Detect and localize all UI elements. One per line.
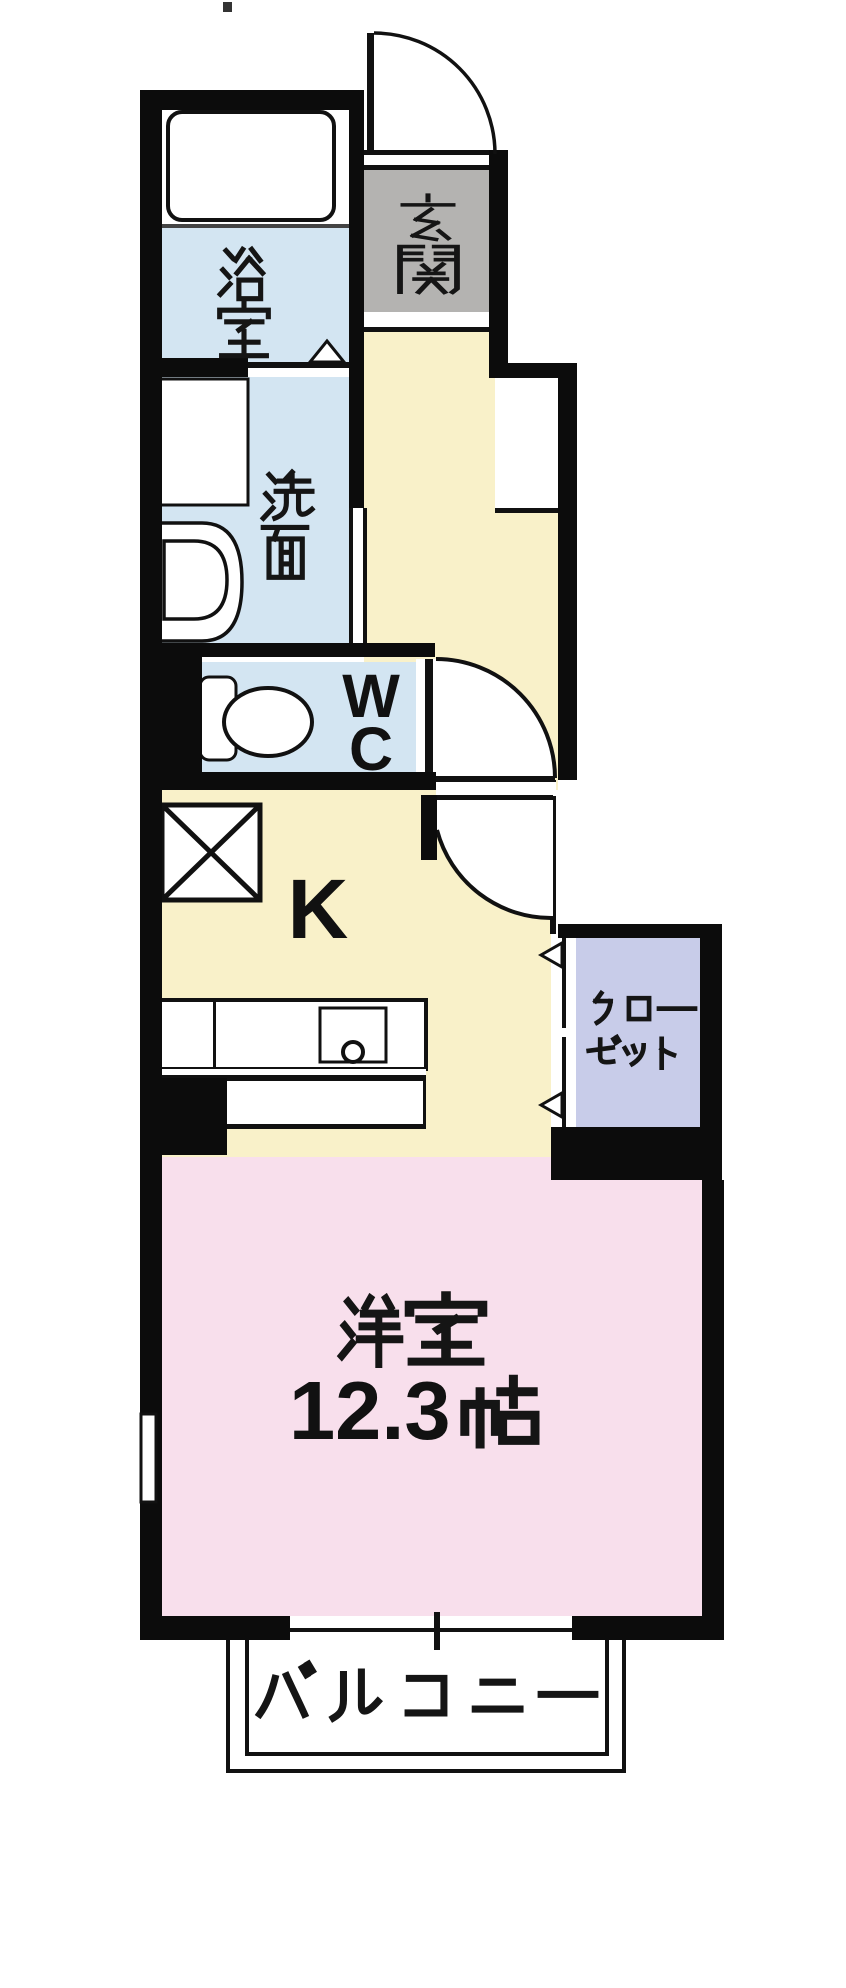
svg-text:C: C	[349, 715, 393, 783]
svg-text:K: K	[288, 862, 349, 956]
svg-text:12.3: 12.3	[289, 1364, 451, 1457]
